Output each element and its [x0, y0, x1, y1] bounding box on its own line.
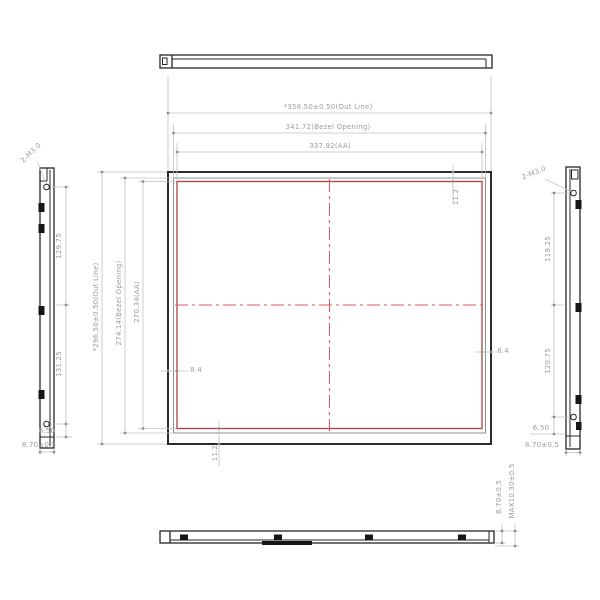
left-dim-hole-upper-label: 129.75	[55, 233, 63, 259]
dim-bezel-top-label: 11.2	[452, 189, 460, 205]
dim-width-bezel-label: 341.72(Bezel Opening)	[286, 123, 371, 131]
right-dim-thickness-label: 8.70±0.5	[525, 441, 559, 449]
left-dim-thickness-label: 8.70±0.5	[22, 441, 56, 449]
dim-height-aa-label: 270.34(AA)	[133, 281, 141, 323]
front-view	[168, 172, 491, 444]
bottom-dim-thickness-label: 8.70±0.5	[495, 480, 503, 514]
right-screw-hole-top	[571, 190, 577, 196]
right-dim-hole-upper-label: 119.25	[544, 236, 552, 262]
left-screw-hole-top	[44, 184, 50, 190]
bottom-dim-max-thickness-label: MAX10.30±0.5	[508, 463, 516, 518]
dim-height-outline-label: *296.50±0.50(Out Line)	[92, 263, 100, 352]
dim-height-bezel-label: 274.14(Bezel Opening)	[115, 261, 123, 346]
right-dim-hole-lower-label: 120.75	[544, 348, 552, 374]
right-screw-hole-bottom	[571, 414, 577, 420]
panel-outline-drawing: *358.50±0.50(Out Line) 341.72(Bezel Open…	[0, 0, 600, 600]
right-side-view	[566, 167, 582, 449]
left-screw-hole-bottom	[44, 421, 50, 427]
left-dim-hole-edge-label: 6.50	[39, 427, 55, 435]
left-dim-hole-lower-label: 131.25	[55, 351, 63, 377]
right-dim-hole-edge-label: 6.50	[533, 424, 549, 432]
dim-width-aa-label: 337.92(AA)	[309, 142, 351, 150]
bottom-view	[160, 531, 494, 545]
dim-width-outline-label: *358.50±0.50(Out Line)	[284, 103, 373, 111]
dim-bezel-right-label: 8.4	[497, 347, 509, 355]
top-view	[160, 55, 492, 68]
dim-bezel-left-label: 8.4	[190, 366, 202, 374]
left-side-view	[39, 168, 55, 448]
dim-bezel-bottom-label: 11.2	[211, 445, 219, 461]
